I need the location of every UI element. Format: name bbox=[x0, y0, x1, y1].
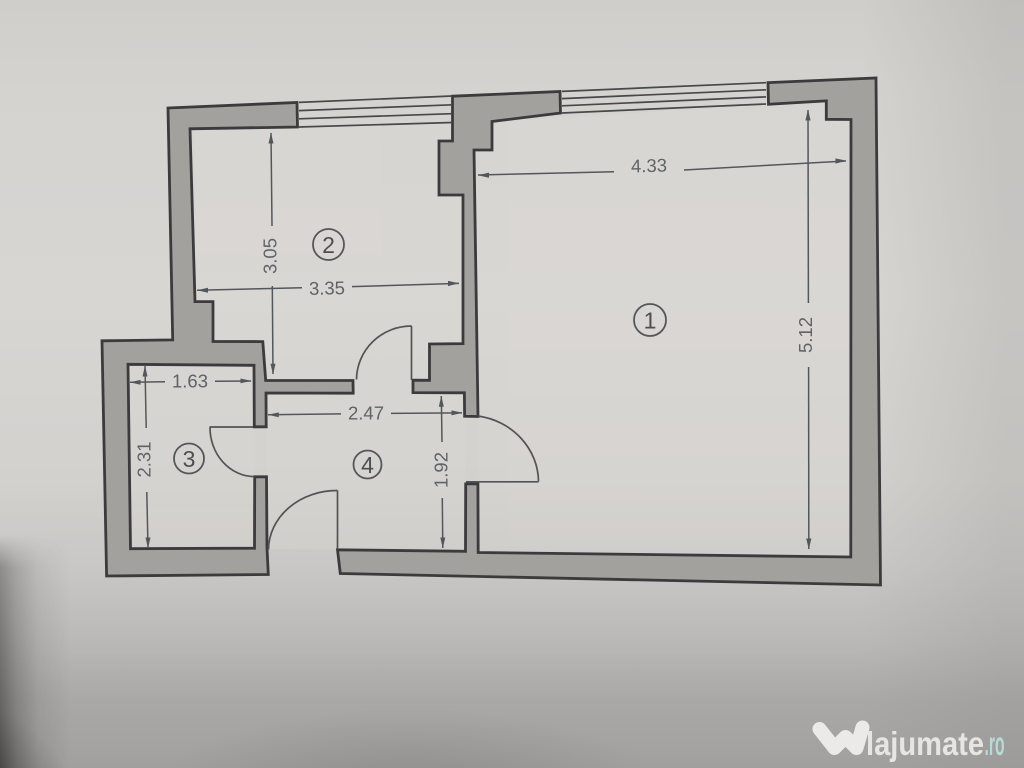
svg-text:5.12: 5.12 bbox=[795, 317, 816, 353]
svg-text:3.05: 3.05 bbox=[260, 238, 281, 274]
svg-text:2: 2 bbox=[322, 232, 335, 258]
svg-text:4: 4 bbox=[361, 452, 374, 478]
svg-text:3.35: 3.35 bbox=[309, 277, 345, 299]
svg-text:1: 1 bbox=[644, 307, 657, 333]
svg-text:lajumate: lajumate bbox=[866, 725, 984, 762]
svg-text:2.47: 2.47 bbox=[348, 403, 384, 424]
svg-text:3: 3 bbox=[183, 446, 196, 472]
svg-text:4.33: 4.33 bbox=[631, 155, 668, 177]
svg-text:1.63: 1.63 bbox=[172, 371, 208, 392]
svg-text:1.92: 1.92 bbox=[431, 452, 452, 488]
svg-text:2.31: 2.31 bbox=[134, 441, 155, 477]
svg-text:.ro: .ro bbox=[985, 725, 1005, 762]
